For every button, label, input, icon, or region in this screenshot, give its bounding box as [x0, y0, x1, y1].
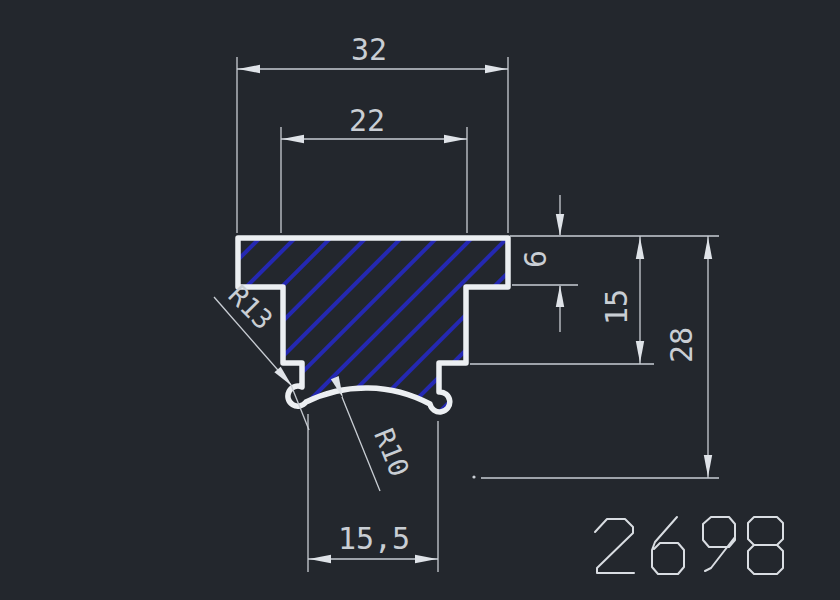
dim-15-text: 15: [599, 289, 634, 325]
dim-32-text: 32: [351, 32, 387, 67]
dim-6-text: 6: [518, 250, 553, 268]
ext-line-dot: [472, 475, 475, 478]
cad-canvas[interactable]: 32 22 6 15 28: [0, 0, 840, 600]
cad-viewport[interactable]: 32 22 6 15 28: [0, 0, 840, 600]
dim-15-5-text: 15,5: [338, 521, 410, 556]
dim-22-text: 22: [349, 103, 385, 138]
dim-28-text: 28: [664, 327, 699, 363]
